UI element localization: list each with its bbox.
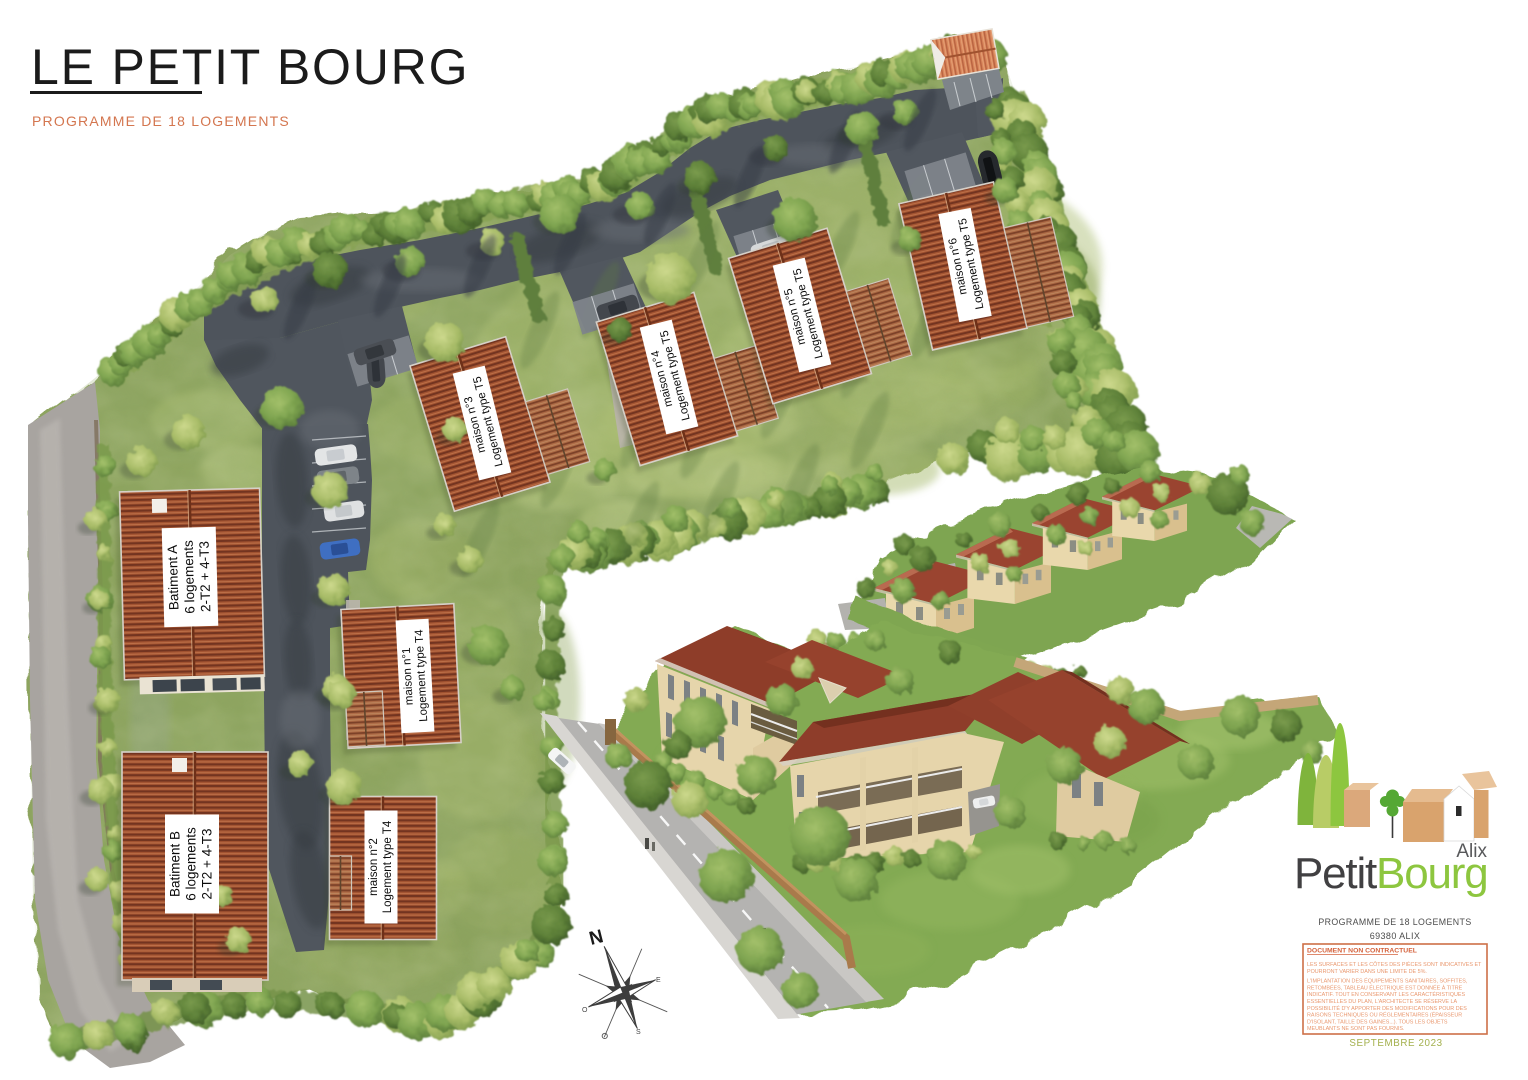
- svg-text:PetitBourg: PetitBourg: [1294, 849, 1487, 898]
- svg-text:PROGRAMME DE 18 LOGEMENTS: PROGRAMME DE 18 LOGEMENTS: [32, 113, 290, 129]
- svg-text:MEUBLANTS NE SONT PAS FOURNIS.: MEUBLANTS NE SONT PAS FOURNIS.: [1307, 1026, 1404, 1032]
- svg-text:E: E: [656, 977, 661, 984]
- svg-text:D'ISOLANT, TAILLE DES GAINES..: D'ISOLANT, TAILLE DES GAINES...). TOUS L…: [1307, 1019, 1448, 1025]
- svg-text:6 logements: 6 logements: [181, 540, 198, 614]
- svg-text:O: O: [582, 1007, 588, 1014]
- svg-text:INDICATIF. TOUT EN CONSERVANT: INDICATIF. TOUT EN CONSERVANT LES CARACT…: [1307, 991, 1465, 998]
- svg-text:RETOMBÉES, TABLEAU ÉLECTRIQUE: RETOMBÉES, TABLEAU ÉLECTRIQUE EST DONNÉE…: [1307, 984, 1463, 991]
- svg-text:LES SURFACES ET LES CÔTES DES: LES SURFACES ET LES CÔTES DES PIÈCES SON…: [1307, 961, 1482, 968]
- svg-text:S: S: [636, 1029, 641, 1036]
- svg-text:Batiment B: Batiment B: [168, 831, 183, 897]
- svg-text:2-T2 + 4-T3: 2-T2 + 4-T3: [197, 541, 214, 612]
- svg-text:L'IMPLANTATION DES ÉQUIPEMENTS: L'IMPLANTATION DES ÉQUIPEMENTS SANITAIRE…: [1307, 978, 1468, 985]
- svg-text:69380 ALIX: 69380 ALIX: [1370, 931, 1421, 941]
- svg-text:Logement type T4: Logement type T4: [382, 820, 394, 913]
- svg-text:POURRONT VARIER DANS UNE LIMIT: POURRONT VARIER DANS UNE LIMITE DE 5%.: [1307, 969, 1427, 975]
- svg-text:POSSIBILITÉ D'Y APPORTER DES M: POSSIBILITÉ D'Y APPORTER DES MODIFICATIO…: [1307, 1005, 1467, 1012]
- svg-text:Batiment A: Batiment A: [165, 545, 182, 611]
- svg-text:SEPTEMBRE 2023: SEPTEMBRE 2023: [1349, 1038, 1442, 1049]
- svg-text:maison n°2: maison n°2: [368, 838, 380, 896]
- svg-text:LE PETIT BOURG: LE PETIT BOURG: [31, 39, 469, 95]
- svg-text:ESSENTIELLES DU PLAN, L'ARCHIT: ESSENTIELLES DU PLAN, L'ARCHITECTE SE RÉ…: [1307, 998, 1458, 1005]
- svg-text:6 logements: 6 logements: [184, 827, 199, 901]
- svg-text:DOCUMENT NON CONTRACTUEL: DOCUMENT NON CONTRACTUEL: [1307, 948, 1417, 955]
- svg-text:PROGRAMME DE 18 LOGEMENTS: PROGRAMME DE 18 LOGEMENTS: [1318, 917, 1471, 927]
- svg-text:RAISONS TECHNIQUES OU RÉGLEMEN: RAISONS TECHNIQUES OU RÉGLEMENTAIRES (ÉP…: [1307, 1012, 1462, 1019]
- svg-text:2-T2 + 4-T3: 2-T2 + 4-T3: [199, 829, 214, 900]
